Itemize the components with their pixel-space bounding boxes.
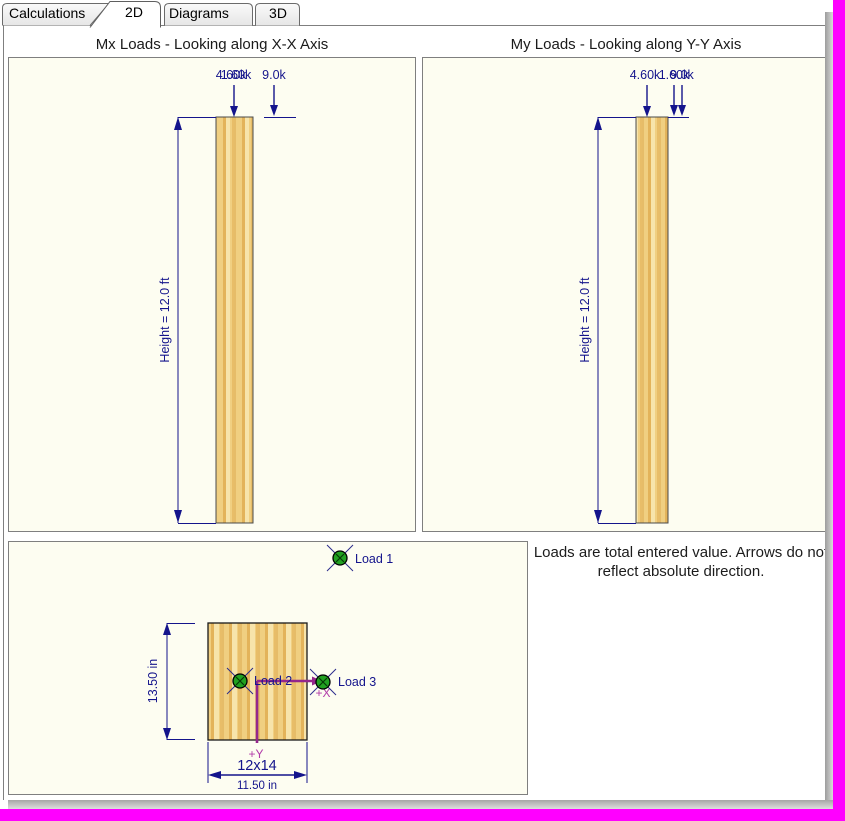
tab-3d[interactable]: 3D — [256, 5, 300, 21]
height-label: Height = 12.0 ft — [158, 277, 172, 363]
axis-y-label: +Y — [248, 747, 263, 761]
dim-arrowhead-up — [163, 623, 171, 635]
load-marker-1 — [327, 545, 353, 571]
load-arrowhead-right-2 — [678, 105, 686, 116]
my-loads-panel: Height = 12.0 ft 4.60k 1.60k 9.0k — [422, 57, 830, 532]
dim-arrowhead-down — [594, 510, 602, 523]
page-left-border — [3, 25, 4, 800]
dim-arrowhead-right — [294, 771, 307, 779]
load-3-label: Load 3 — [338, 675, 376, 689]
wood-column — [216, 117, 253, 523]
load-arrowhead-center — [230, 106, 238, 117]
dim-arrowhead-left — [208, 771, 221, 779]
my-elevation-drawing: Height = 12.0 ft 4.60k 1.60k 9.0k — [423, 58, 829, 531]
dim-arrowhead-down — [163, 728, 171, 740]
tab-2d[interactable]: 2D — [112, 4, 156, 20]
load-2-label: Load 2 — [254, 674, 292, 688]
load-arrowhead-right — [270, 105, 278, 116]
cross-section-drawing: 13.50 in 12x14 11.50 in +Y +X Load — [9, 542, 527, 794]
plan-view-panel: 13.50 in 12x14 11.50 in +Y +X Load — [8, 541, 528, 795]
tab-strip: Calculations 2D Diagrams 3D — [0, 0, 845, 28]
height-label: Height = 12.0 ft — [578, 277, 592, 363]
mx-loads-panel: Height = 12.0 ft 4.60k 1.60k 9.0k — [8, 57, 416, 532]
width-dimension-label: 11.50 in — [237, 780, 277, 792]
magenta-frame-right — [833, 0, 845, 821]
my-panel-title: My Loads - Looking along Y-Y Axis — [422, 36, 830, 53]
depth-dimension-label: 13.50 in — [146, 659, 160, 704]
tab-diagrams[interactable]: Diagrams — [169, 5, 229, 21]
loads-note: Loads are total entered value. Arrows do… — [533, 543, 829, 581]
load-value-label: 1.60k — [221, 68, 252, 82]
dim-arrowhead-up — [594, 117, 602, 130]
load-arrowhead-right-1 — [670, 105, 678, 116]
app-window: Calculations 2D Diagrams 3D Mx Loads - L… — [0, 0, 845, 821]
load-1-label: Load 1 — [355, 552, 393, 566]
window-shadow-bottom — [8, 800, 833, 809]
dim-arrowhead-up — [174, 117, 182, 130]
load-value-label: 9.0k — [262, 68, 286, 82]
load-value-label: 9.0k — [670, 68, 694, 82]
load-value-label: 4.60k — [630, 68, 661, 82]
mx-elevation-drawing: Height = 12.0 ft 4.60k 1.60k 9.0k — [9, 58, 415, 531]
tab-calculations[interactable]: Calculations — [9, 5, 85, 21]
wood-column — [636, 117, 668, 523]
dim-arrowhead-down — [174, 510, 182, 523]
load-arrowhead-center — [643, 106, 651, 117]
window-shadow-right — [825, 12, 833, 803]
magenta-frame-bottom — [0, 809, 845, 821]
mx-panel-title: Mx Loads - Looking along X-X Axis — [8, 36, 416, 53]
